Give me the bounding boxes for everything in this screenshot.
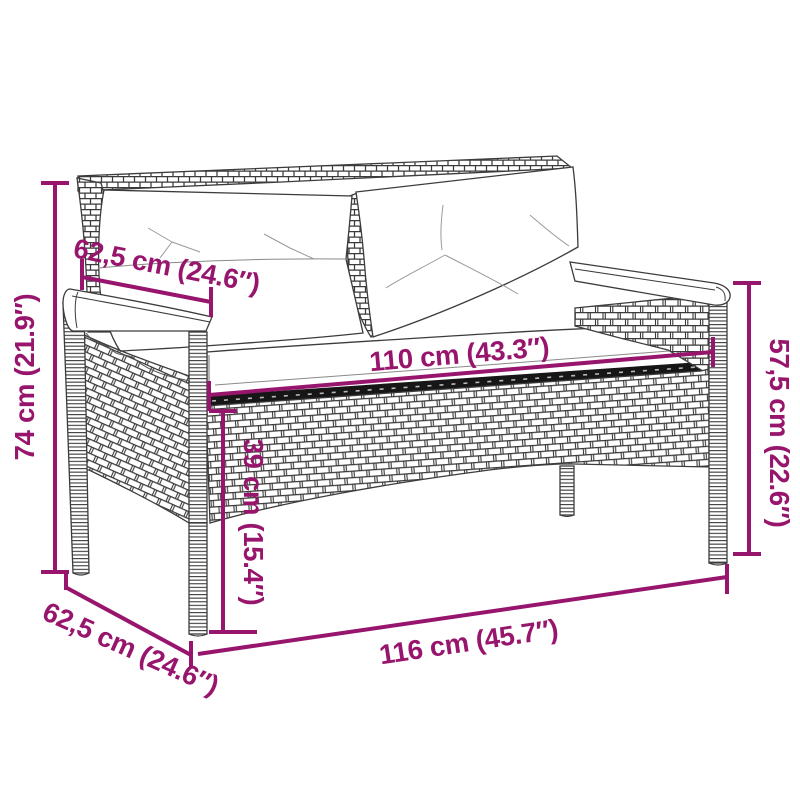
svg-text:74 cm (21.9″): 74 cm (21.9″)	[9, 294, 40, 461]
svg-text:57,5 cm (22.6″): 57,5 cm (22.6″)	[764, 338, 795, 527]
svg-text:39 cm (15.4″): 39 cm (15.4″)	[238, 439, 269, 606]
